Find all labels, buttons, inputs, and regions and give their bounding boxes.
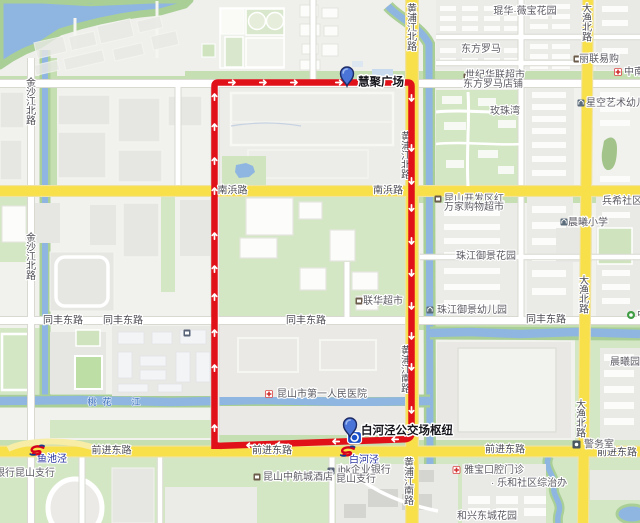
- svg-text:东方罗马店铺: 东方罗马店铺: [463, 77, 523, 90]
- svg-text:昆山支行: 昆山支行: [336, 472, 376, 485]
- svg-text:花: 花: [102, 396, 111, 407]
- svg-text:路: 路: [579, 303, 589, 316]
- svg-text:珠江御景花园: 珠江御景花园: [456, 249, 516, 262]
- svg-text:路: 路: [26, 269, 36, 282]
- svg-text:昆山市第一人民医院: 昆山市第一人民医院: [277, 387, 367, 400]
- svg-text:晨曦园西门: 晨曦园西门: [610, 355, 640, 368]
- svg-text:中南社: 中南社: [624, 65, 640, 78]
- svg-text:前进东路: 前进东路: [485, 443, 525, 456]
- svg-text:· 乐和社区综治办: · 乐和社区综治办: [491, 476, 567, 489]
- svg-text:慧聚广场: 慧聚广场: [358, 75, 404, 89]
- svg-text:和兴东城花园: 和兴东城花园: [457, 509, 517, 522]
- svg-text:前进东路: 前进东路: [252, 444, 292, 457]
- svg-text:白河泾公交场枢纽: 白河泾公交场枢纽: [361, 423, 453, 437]
- svg-text:警务室: 警务室: [584, 438, 614, 451]
- svg-text:昆山中航城酒店: 昆山中航城酒店: [263, 470, 333, 483]
- svg-text:路: 路: [582, 31, 592, 44]
- svg-text:玫珠湾: 玫珠湾: [490, 104, 520, 117]
- svg-text:路: 路: [404, 494, 414, 507]
- svg-text:江: 江: [131, 397, 140, 407]
- svg-text:兵希社区卫: 兵希社区卫: [602, 194, 640, 207]
- svg-text:路: 路: [407, 40, 417, 53]
- svg-text:珠江御景幼儿园: 珠江御景幼儿园: [437, 303, 507, 316]
- svg-text:雅宝口腔门诊: 雅宝口腔门诊: [464, 463, 524, 476]
- svg-text:同丰东路: 同丰东路: [103, 314, 143, 327]
- svg-text:鱼池泾: 鱼池泾: [37, 452, 67, 465]
- svg-text:路: 路: [576, 427, 586, 440]
- svg-text:路: 路: [26, 114, 36, 127]
- svg-text:丽联易购: 丽联易购: [579, 52, 619, 65]
- svg-text:同丰东路: 同丰东路: [526, 313, 566, 326]
- svg-text:南浜路: 南浜路: [218, 184, 248, 197]
- svg-text:前进东路: 前进东路: [92, 444, 132, 457]
- svg-text:同丰东路: 同丰东路: [286, 314, 326, 327]
- svg-text:星空艺术幼儿园: 星空艺术幼儿园: [586, 96, 640, 109]
- svg-text:琨华·薇宝花园: 琨华·薇宝花园: [493, 4, 556, 17]
- svg-text:银行昆山支行: 银行昆山支行: [0, 466, 55, 479]
- svg-text:同丰东路: 同丰东路: [43, 314, 83, 327]
- svg-text:南浜路: 南浜路: [373, 184, 403, 197]
- svg-text:联华超市: 联华超市: [363, 294, 403, 307]
- svg-text:晨曦小学: 晨曦小学: [568, 216, 608, 229]
- svg-text:万家购物超市: 万家购物超市: [444, 200, 504, 213]
- svg-text:桃: 桃: [87, 396, 96, 407]
- svg-text:东方罗马: 东方罗马: [461, 42, 501, 55]
